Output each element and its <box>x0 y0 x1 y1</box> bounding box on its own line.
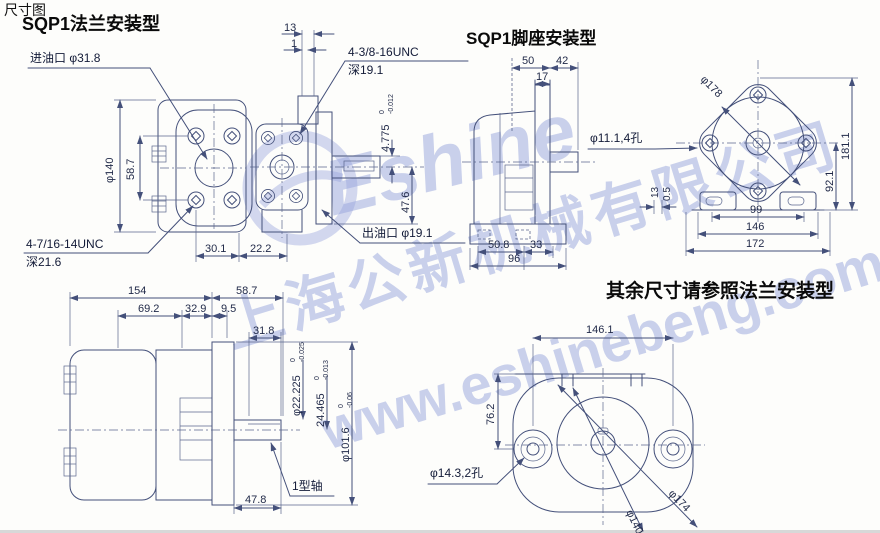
dim-58-7-side: 58.7 <box>236 285 257 297</box>
flange-top-dims: 13 1 <box>282 22 334 96</box>
dim-146: 146 <box>746 221 764 233</box>
label-shaft-type: 1型轴 <box>292 478 323 493</box>
dim-32-9: 32.9 <box>185 303 206 315</box>
flange-side-view <box>58 342 300 505</box>
dim-154: 154 <box>128 285 146 297</box>
dim-key24-tol-top: 0 <box>314 376 321 380</box>
flange-rear-dims: φ140 58.7 30.1 22.2 <box>104 100 287 262</box>
dim-key-tol-bot: -0.012 <box>388 94 395 114</box>
dim-shaft-dia: φ22.225 <box>291 375 303 416</box>
dim-shaft-tol-top: 0 <box>290 358 297 362</box>
dim-42: 42 <box>556 55 568 67</box>
dim-1: 1 <box>291 38 297 50</box>
dim-99: 99 <box>750 204 762 216</box>
label-outlet: 出油口 φ19.1 <box>362 226 433 240</box>
dimension-drawing-canvas: Eshine 上海公新机械有限公司 www.eshinebeng.com 尺寸图… <box>0 0 880 533</box>
label-hole2: φ14.3,2孔 <box>430 466 483 480</box>
dim-0-5: 0.5 <box>662 187 673 201</box>
label-inlet: 进油口 φ31.8 <box>30 51 101 65</box>
dim-key-24-465: 24.465 <box>315 393 327 427</box>
dimension-drawing-page: Eshine 上海公新机械有限公司 www.eshinebeng.com 尺寸图… <box>0 0 880 533</box>
dim-92-1: 92.1 <box>824 171 836 192</box>
dim-31-8: 31.8 <box>253 325 274 337</box>
dim-key-4-775: 4.775 <box>380 124 392 152</box>
dim-13-small: 13 <box>650 186 661 198</box>
dim-172: 172 <box>746 238 764 250</box>
flange-section-title: SQP1法兰安装型 <box>22 13 160 34</box>
dim-47-6: 47.6 <box>400 192 412 213</box>
foot-note: 其余尺寸请参照法兰安装型 <box>606 279 834 302</box>
dim-181-1: 181.1 <box>840 132 852 160</box>
dim-47-8: 47.8 <box>245 494 266 506</box>
dim-pilot-tol-top: 0 <box>338 404 345 408</box>
label-thread-bottom-depth: 深21.6 <box>26 255 62 269</box>
dim-76-2: 76.2 <box>485 404 497 425</box>
dim-50-8: 50.8 <box>488 239 509 251</box>
dim-9-5: 9.5 <box>221 303 236 315</box>
dim-50: 50 <box>522 55 534 67</box>
dim-17: 17 <box>536 71 548 83</box>
foot-section-title: SQP1脚座安装型 <box>466 28 596 48</box>
dim-58-7: 58.7 <box>125 159 137 180</box>
dim-33: 33 <box>530 239 542 251</box>
label-thread-bottom: 4-7/16-14UNC <box>26 237 104 251</box>
dim-96: 96 <box>508 253 520 265</box>
dim-13: 13 <box>284 22 296 34</box>
dim-30-1: 30.1 <box>205 243 226 255</box>
dim-dia140: φ140 <box>104 158 116 184</box>
dim-dia178: φ178 <box>698 74 725 101</box>
dim-69-2: 69.2 <box>138 303 159 315</box>
dim-146-1: 146.1 <box>586 324 614 336</box>
dim-22-2: 22.2 <box>250 243 271 255</box>
dim-dia174: φ174 <box>666 488 692 515</box>
dim-shaft-tol-bot: -0.025 <box>299 342 306 362</box>
dim-pilot-tol-bot: -0.06 <box>347 392 354 408</box>
dim-key24-tol-bot: -0.013 <box>323 360 330 380</box>
dim-key-tol-top: 0 <box>379 110 386 114</box>
label-thread-top-depth: 深19.1 <box>348 63 384 77</box>
label-hole4: φ11.1,4孔 <box>590 131 642 145</box>
flange-rear-view <box>152 100 252 232</box>
dim-pilot-101-6: φ101.6 <box>340 427 352 462</box>
label-thread-top: 4-3/8-16UNC <box>348 45 419 59</box>
